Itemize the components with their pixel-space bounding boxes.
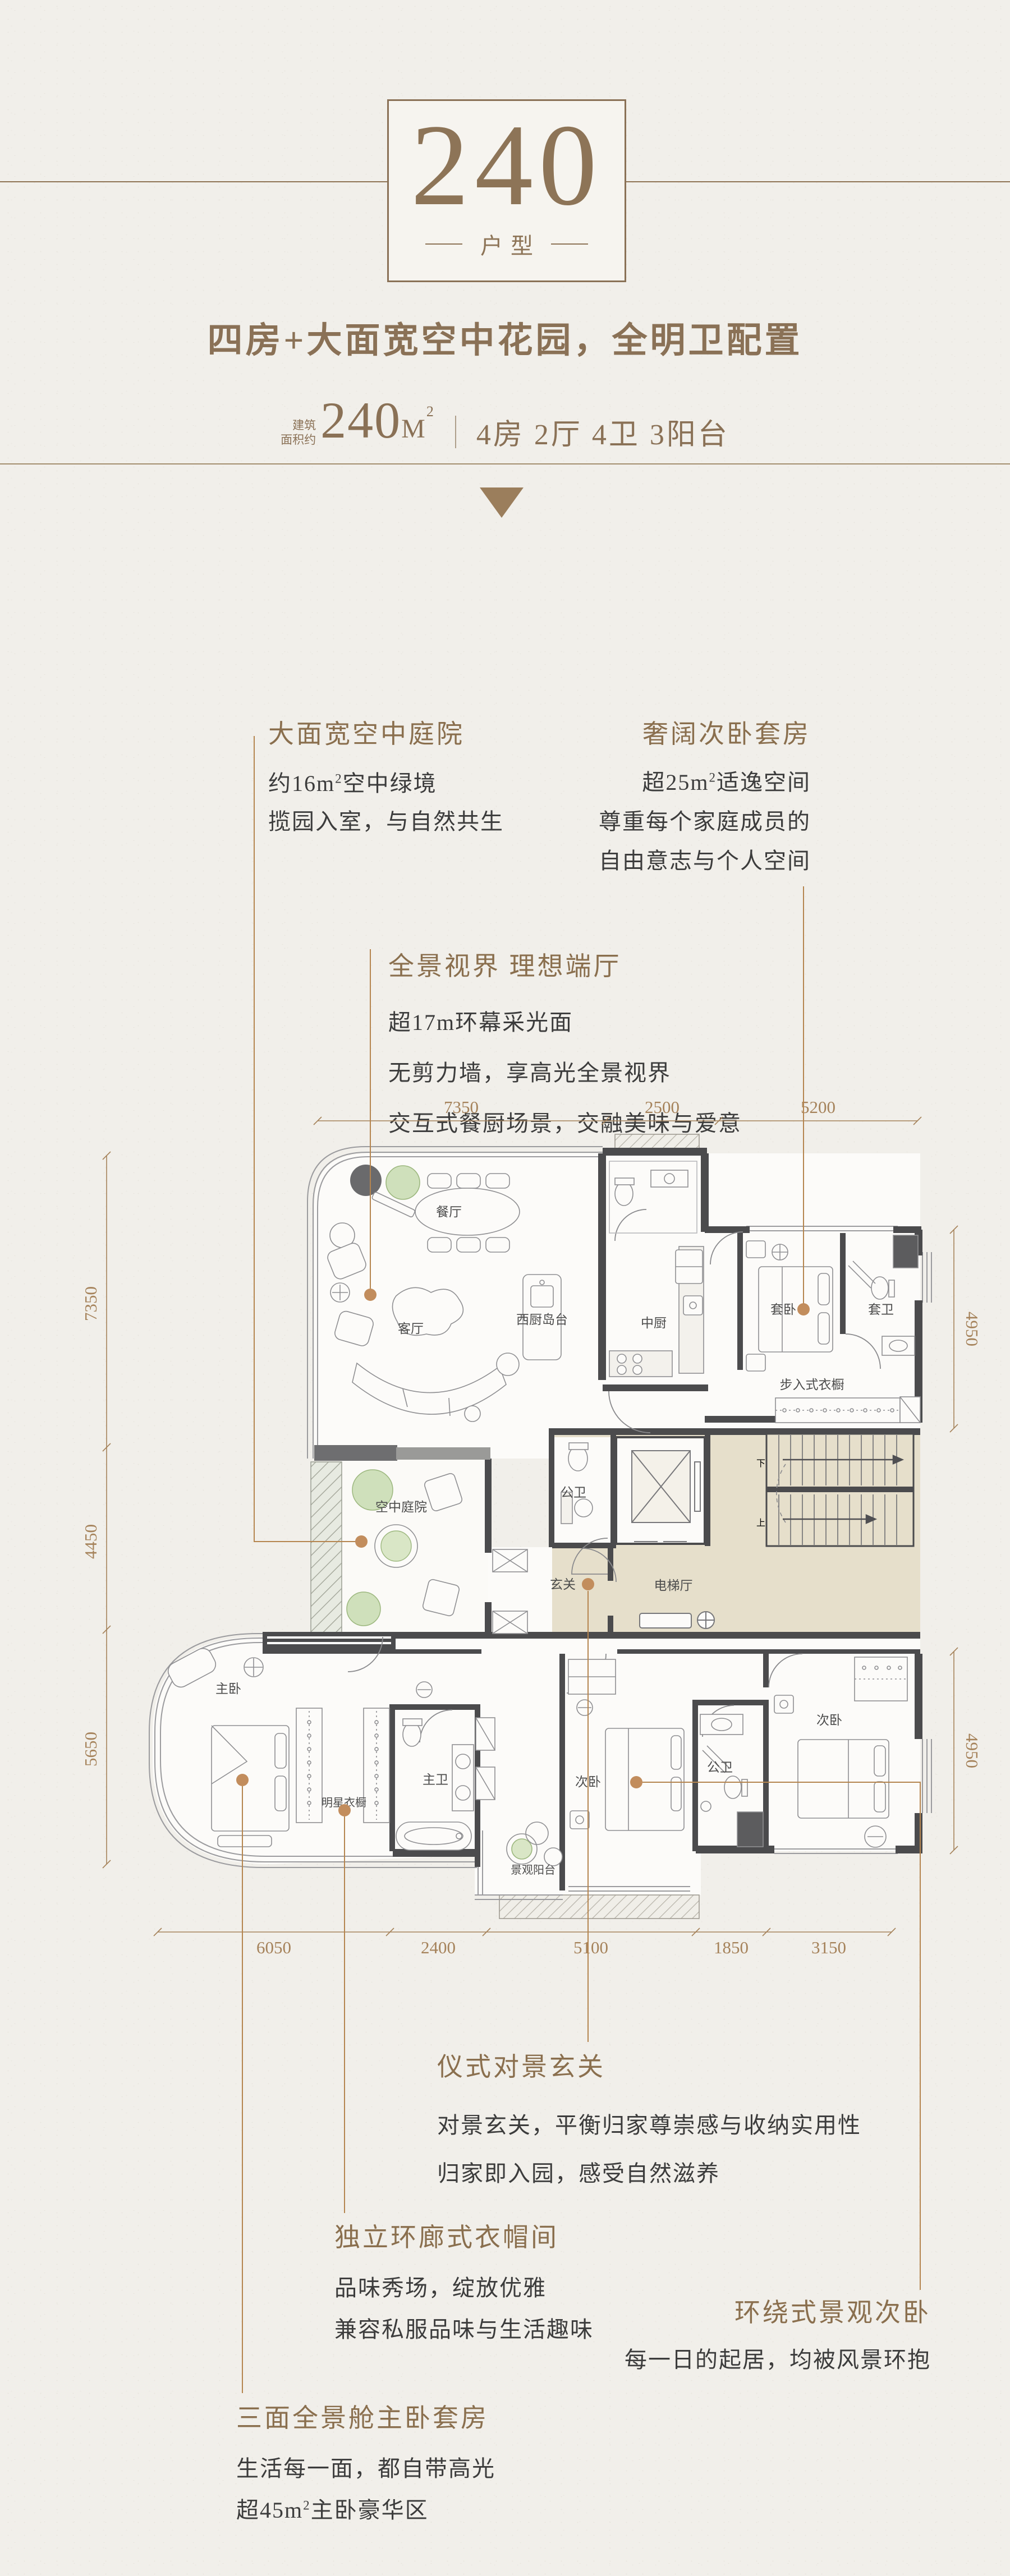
- leader-dot-foyer: [582, 1578, 594, 1590]
- annotation-bedroom: 环绕式景观次卧 每一日的起居，均被风景环抱: [625, 2292, 931, 2374]
- type-label: 户型: [472, 228, 541, 260]
- dash-right: [551, 243, 588, 245]
- stair-down-label: 下: [756, 1459, 765, 1469]
- leader-hall: [370, 949, 371, 1289]
- leader-dot-courtyard: [355, 1535, 368, 1548]
- dim-left-1: 7350: [81, 1286, 100, 1321]
- type-badge: 240 户型: [387, 99, 626, 282]
- basin: [575, 1499, 593, 1517]
- annotation-courtyard: 大面宽空中庭院 约16m2空中绿境 揽园入室，与自然共生: [268, 714, 504, 836]
- dim-top-2: 2500: [645, 1097, 680, 1117]
- down-triangle-icon: [480, 487, 524, 518]
- dim-bottom-3: 5100: [573, 1938, 608, 1957]
- room-label-lift-hall: 电梯厅: [654, 1579, 693, 1593]
- leader-dot-suite: [797, 1303, 810, 1315]
- room-label-courtyard: 空中庭院: [375, 1500, 427, 1514]
- tree-icon: [347, 1592, 380, 1626]
- dim-left-2: 4450: [81, 1524, 100, 1559]
- room-label-master-bath: 主卫: [423, 1773, 448, 1787]
- dim-top-3: 5200: [801, 1097, 835, 1117]
- area-prefix: 建筑 面积约: [281, 418, 316, 447]
- dim-bottom-1: 6050: [256, 1938, 291, 1957]
- wardrobe: [855, 1657, 907, 1701]
- stairs: 下 上: [756, 1434, 913, 1546]
- leader-dot-bed2: [630, 1776, 642, 1788]
- annotation-master: 三面全景舱主卧套房 生活每一面，都自带高光 超45m2主卧豪华区: [236, 2398, 495, 2524]
- dim-top-1: 7350: [444, 1097, 479, 1117]
- dim-right-2: 4950: [962, 1733, 982, 1768]
- room-label-view-balcony: 景观阳台: [511, 1864, 555, 1876]
- lobby-bench: [640, 1612, 714, 1629]
- leader-foyer: [587, 1591, 589, 2042]
- spec-row: 建筑 面积约 240M2 4房 2厅 4卫 3阳台: [0, 386, 1010, 455]
- leader-master: [242, 1786, 243, 2393]
- leader-courtyard-h: [254, 1541, 356, 1542]
- dim-left-3: 5650: [81, 1732, 100, 1767]
- courtyard-edge: [311, 1462, 342, 1633]
- room-specs: 4房 2厅 4卫 3阳台: [476, 416, 729, 455]
- decor-rug: [350, 1165, 382, 1196]
- page-title: 四房+大面宽空中花园，全明卫配置: [0, 312, 1010, 363]
- room-label-kitchen: 中厨: [641, 1316, 667, 1330]
- toilet-icon: [724, 1776, 741, 1798]
- dim-bottom-5: 3150: [811, 1938, 846, 1957]
- room-label-island: 西厨岛台: [516, 1313, 568, 1327]
- leader-dot-master: [236, 1774, 249, 1786]
- room-label-suite-bath: 套卫: [868, 1303, 894, 1317]
- dash-left: [425, 243, 462, 245]
- stool: [544, 1848, 562, 1866]
- south-balcony: [499, 1895, 699, 1919]
- poster-page: 240 户型 四房+大面宽空中花园，全明卫配置 建筑 面积约 240M2 4房 …: [0, 0, 1010, 2576]
- dim-bottom-2: 2400: [421, 1938, 456, 1957]
- type-number: 240: [389, 105, 625, 224]
- room-label-dining: 餐厅: [436, 1205, 462, 1219]
- type-label-row: 户型: [389, 228, 625, 260]
- spec-divider: [455, 416, 456, 448]
- shower: [893, 1235, 918, 1268]
- leader-bed2-v: [920, 1782, 921, 2290]
- leader-dot-hall: [364, 1289, 377, 1301]
- leader-closet: [344, 1816, 345, 2213]
- dim-right-1: 4950: [962, 1312, 982, 1346]
- annotation-closet: 独立环廊式衣帽间 品味秀场，绽放优雅 兼容私服品味与生活趣味: [334, 2217, 594, 2344]
- toilet-icon: [403, 1723, 421, 1746]
- cabinet-dark: [737, 1812, 763, 1847]
- leader-suite: [803, 886, 804, 1304]
- room-label-suite-bed: 套卧: [770, 1303, 796, 1317]
- room-label-bed3: 次卧: [816, 1713, 842, 1727]
- room-label-foyer: 玄关: [550, 1577, 576, 1591]
- tree-icon: [386, 1166, 420, 1199]
- room-label-core-bath: 公卫: [561, 1485, 586, 1499]
- floor-plan: 下 上: [0, 1088, 1010, 1963]
- dining-table: [415, 1188, 520, 1235]
- leader-courtyard: [254, 736, 255, 1542]
- leader-bed2-h: [642, 1782, 921, 1783]
- dim-bottom-4: 1850: [714, 1938, 749, 1957]
- annotation-foyer: 仪式对景玄关 对景玄关，平衡归家尊崇感与收纳实用性 归家即入园，感受自然滋养: [437, 2046, 861, 2188]
- toilet-icon: [871, 1277, 888, 1299]
- room-label-shared-bath: 公卫: [707, 1760, 733, 1774]
- section-rule: [0, 463, 1010, 464]
- room-label-master: 主卧: [215, 1682, 241, 1696]
- room-label-walkin: 步入式衣橱: [780, 1378, 844, 1392]
- leader-dot-closet: [338, 1804, 351, 1816]
- annotation-suite: 奢阔次卧套房 超25m2适逸空间 尊重每个家庭成员的 自由意志与个人空间: [599, 714, 811, 875]
- area-value: 240M2: [320, 386, 435, 455]
- stair-up-label: 上: [756, 1518, 765, 1528]
- room-label-living: 客厅: [398, 1322, 424, 1336]
- toilet-icon: [615, 1182, 633, 1206]
